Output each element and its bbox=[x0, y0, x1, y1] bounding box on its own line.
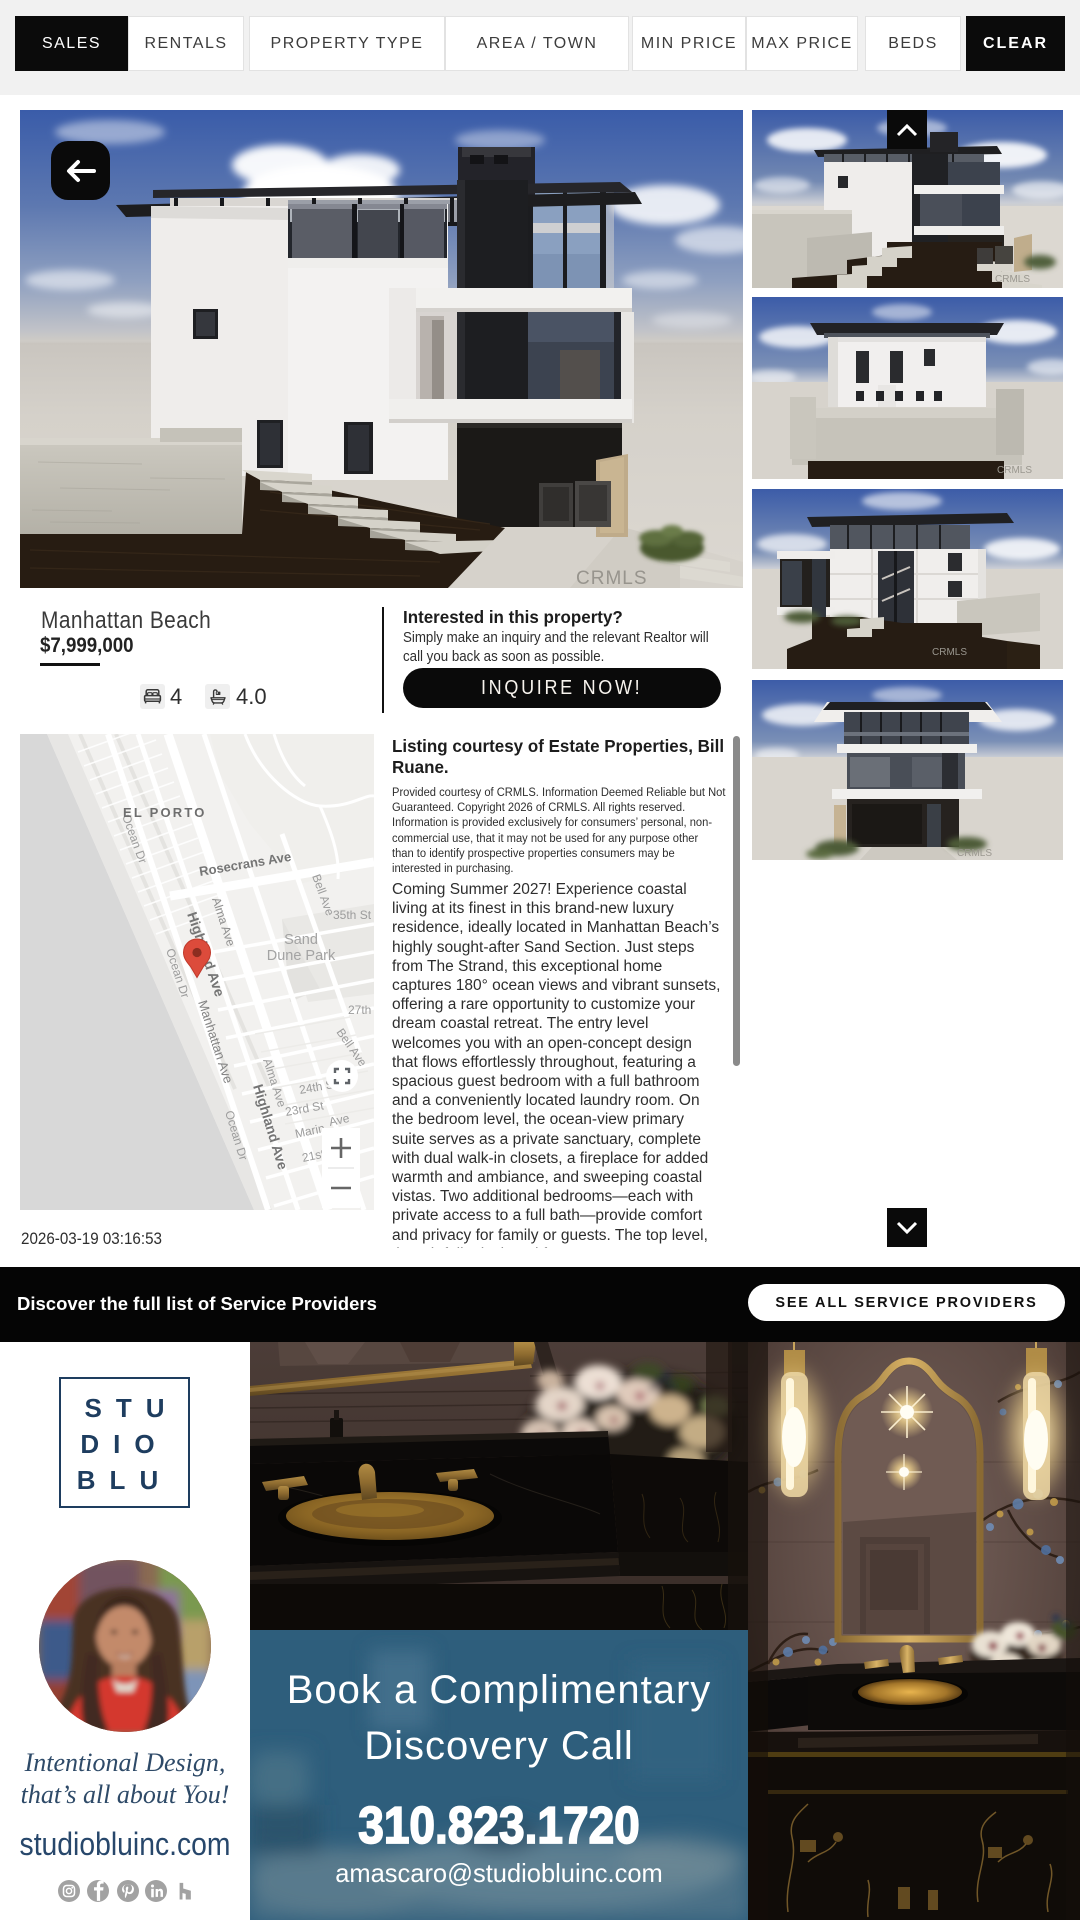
svg-text:35th St: 35th St bbox=[333, 908, 372, 922]
svg-text:EL PORTO: EL PORTO bbox=[123, 805, 207, 820]
svg-text:CRMLS: CRMLS bbox=[995, 274, 1030, 285]
svg-text:CRMLS: CRMLS bbox=[997, 465, 1032, 476]
svg-text:CRMLS: CRMLS bbox=[576, 568, 648, 588]
svg-text:27th: 27th bbox=[348, 1003, 371, 1017]
svg-text:Dune Park: Dune Park bbox=[267, 948, 336, 964]
svg-text:CRMLS: CRMLS bbox=[957, 848, 992, 859]
svg-text:Sand: Sand bbox=[284, 932, 318, 948]
svg-text:CRMLS: CRMLS bbox=[932, 647, 967, 658]
